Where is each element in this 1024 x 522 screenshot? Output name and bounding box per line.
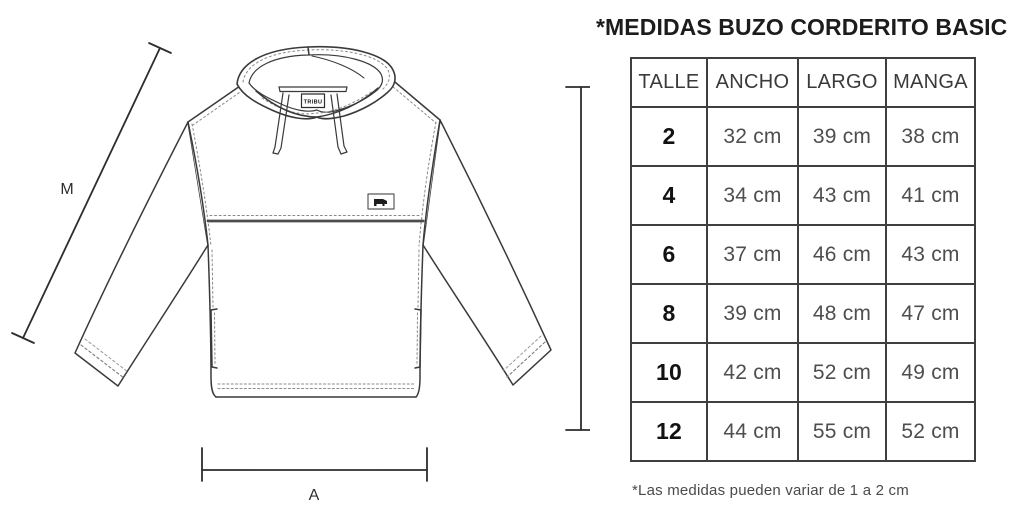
size-table: TALLE ANCHO LARGO MANGA 2 32 cm 39 cm 38…: [630, 57, 976, 462]
chest-logo-patch: [368, 194, 394, 209]
table-row: 10 42 cm 52 cm 49 cm: [631, 343, 975, 402]
manga-value: 49 cm: [886, 343, 975, 402]
largo-value: 39 cm: [798, 107, 886, 166]
largo-value: 48 cm: [798, 284, 886, 343]
ancho-value: 32 cm: [707, 107, 798, 166]
hoodie-body: [188, 120, 440, 397]
page-title: *MEDIDAS BUZO CORDERITO BASIC: [596, 14, 1020, 41]
size-value: 12: [631, 402, 707, 461]
largo-value: 46 cm: [798, 225, 886, 284]
ancho-value: 44 cm: [707, 402, 798, 461]
col-header-ancho: ANCHO: [707, 58, 798, 107]
manga-value: 38 cm: [886, 107, 975, 166]
largo-value: 43 cm: [798, 166, 886, 225]
table-row: 2 32 cm 39 cm 38 cm: [631, 107, 975, 166]
measure-line-width: [202, 448, 427, 481]
neck-tag: TRIBU: [302, 94, 325, 108]
manga-value: 41 cm: [886, 166, 975, 225]
table-row: 4 34 cm 43 cm 41 cm: [631, 166, 975, 225]
manga-value: 52 cm: [886, 402, 975, 461]
sleeve-right: [423, 120, 551, 385]
footnote: *Las medidas pueden variar de 1 a 2 cm: [632, 482, 909, 499]
measure-label-width: A: [309, 487, 320, 504]
col-header-largo: LARGO: [798, 58, 886, 107]
size-value: 6: [631, 225, 707, 284]
neck-tag-text: TRIBU: [304, 100, 323, 106]
largo-value: 52 cm: [798, 343, 886, 402]
largo-value: 55 cm: [798, 402, 886, 461]
ancho-value: 39 cm: [707, 284, 798, 343]
measure-label-sleeve: M: [60, 181, 73, 198]
ancho-value: 34 cm: [707, 166, 798, 225]
table-header-row: TALLE ANCHO LARGO MANGA: [631, 58, 975, 107]
sleeve-left: [75, 122, 208, 386]
ancho-value: 37 cm: [707, 225, 798, 284]
size-value: 10: [631, 343, 707, 402]
hoodie-diagram: TRIBU: [0, 0, 590, 522]
manga-value: 47 cm: [886, 284, 975, 343]
table-row: 6 37 cm 46 cm 43 cm: [631, 225, 975, 284]
size-value: 8: [631, 284, 707, 343]
col-header-talle: TALLE: [631, 58, 707, 107]
size-value: 2: [631, 107, 707, 166]
size-guide: TRIBU: [0, 0, 1024, 522]
measure-line-length: [566, 87, 590, 430]
col-header-manga: MANGA: [886, 58, 975, 107]
table-row: 12 44 cm 55 cm 52 cm: [631, 402, 975, 461]
table-row: 8 39 cm 48 cm 47 cm: [631, 284, 975, 343]
manga-value: 43 cm: [886, 225, 975, 284]
size-value: 4: [631, 166, 707, 225]
ancho-value: 42 cm: [707, 343, 798, 402]
